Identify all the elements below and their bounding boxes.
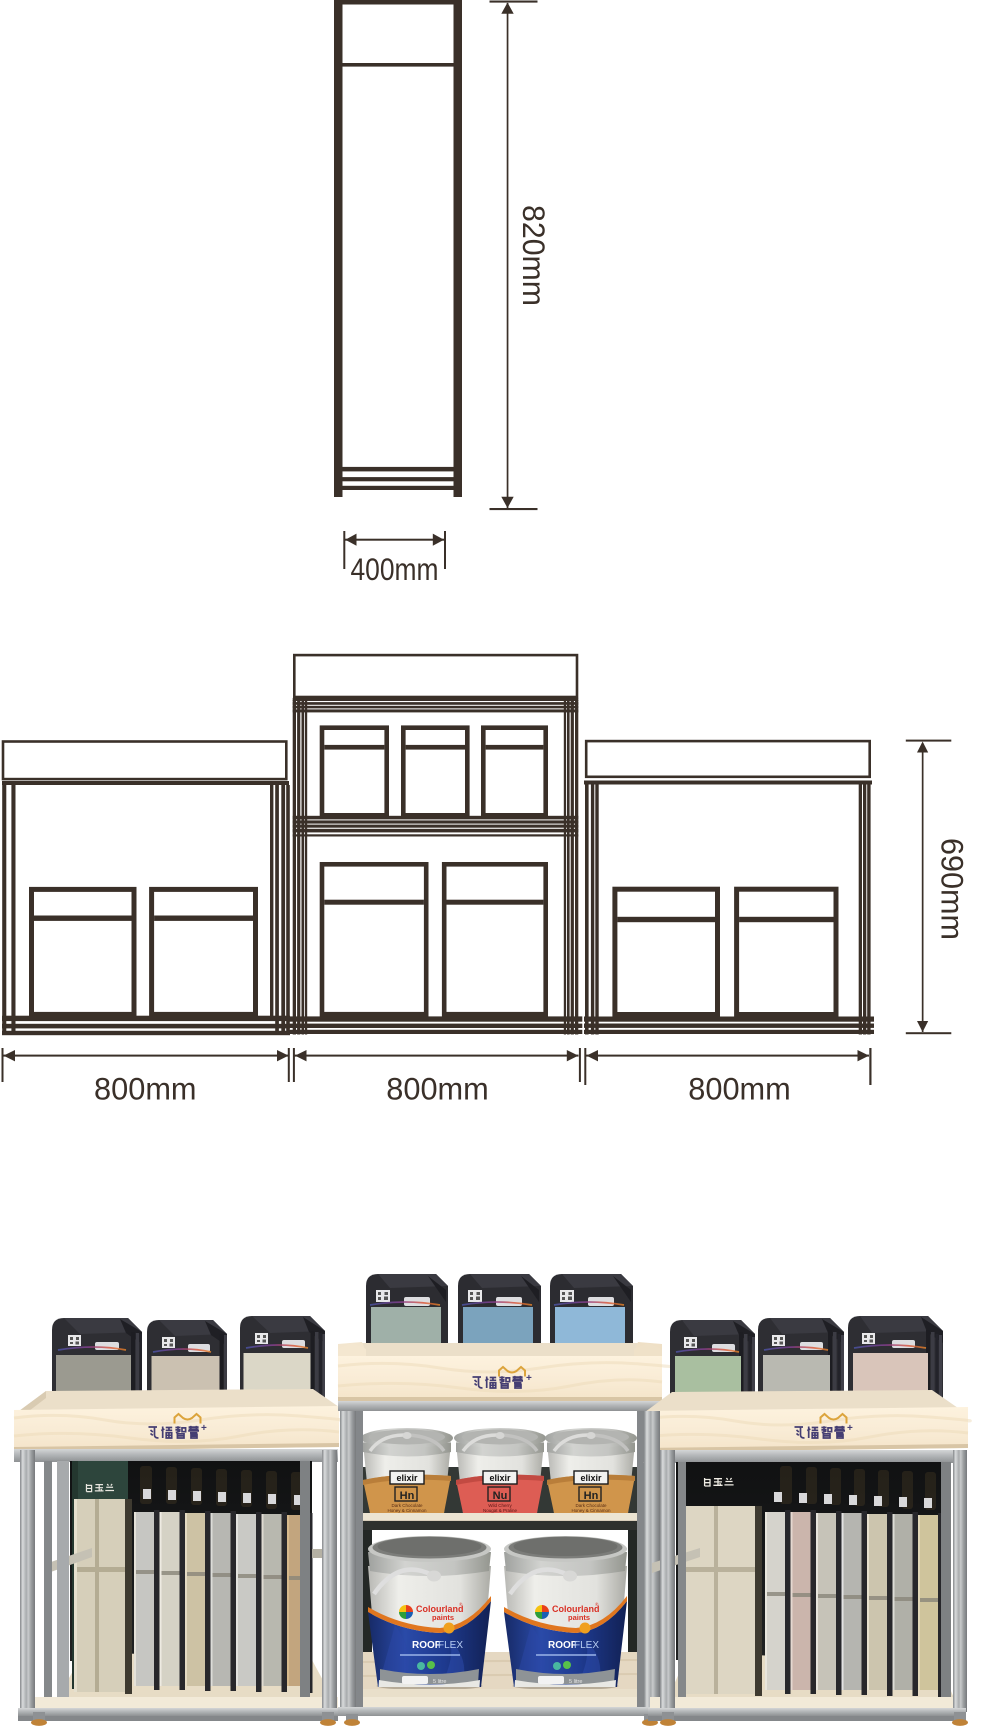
svg-text:ROOF: ROOF	[412, 1640, 441, 1651]
svg-text:Hn: Hn	[400, 1490, 415, 1502]
svg-text:5 litre: 5 litre	[433, 1679, 446, 1685]
svg-text:Honey & Cinnamon: Honey & Cinnamon	[387, 1508, 427, 1513]
svg-text:+: +	[526, 1373, 532, 1384]
svg-text:Hn: Hn	[584, 1490, 599, 1502]
svg-text:elixir: elixir	[489, 1473, 511, 1483]
svg-text:Nu: Nu	[493, 1490, 508, 1502]
svg-text:elixir: elixir	[396, 1473, 418, 1483]
svg-text:paints: paints	[568, 1613, 590, 1622]
svg-text:Nougat & Praline: Nougat & Praline	[483, 1508, 518, 1513]
svg-text:690mm: 690mm	[935, 838, 971, 940]
svg-text:FLEX: FLEX	[438, 1640, 463, 1651]
svg-text:FLEX: FLEX	[574, 1640, 599, 1651]
svg-text:800mm: 800mm	[94, 1071, 197, 1107]
svg-text:elixir: elixir	[580, 1473, 602, 1483]
svg-text:Honey & Cinnamon: Honey & Cinnamon	[571, 1508, 611, 1513]
svg-text:paints: paints	[432, 1613, 454, 1622]
svg-text:+: +	[847, 1423, 853, 1434]
svg-text:800mm: 800mm	[688, 1071, 791, 1107]
svg-text:400mm: 400mm	[351, 551, 439, 587]
svg-text:800mm: 800mm	[386, 1071, 489, 1107]
svg-text:820mm: 820mm	[516, 205, 552, 306]
svg-text:5 litre: 5 litre	[569, 1679, 582, 1685]
svg-text:ROOF: ROOF	[548, 1640, 577, 1651]
svg-text:+: +	[201, 1423, 207, 1434]
